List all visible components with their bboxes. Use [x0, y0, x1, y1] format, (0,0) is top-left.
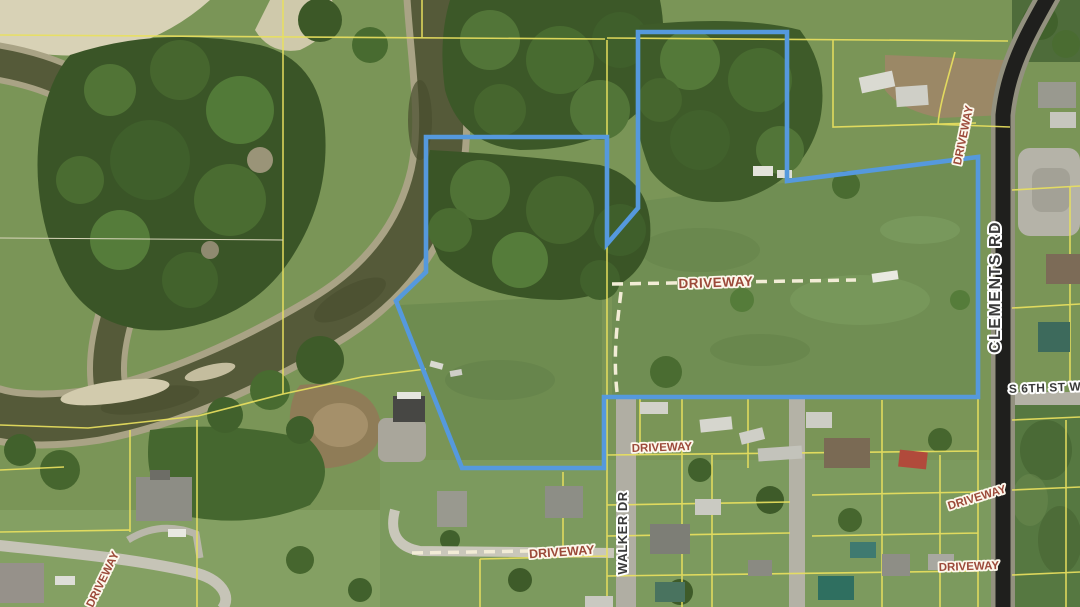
road-label-s-6th-st-w: S 6TH ST W	[1009, 379, 1080, 396]
aerial-map-canvas[interactable]: CLEMENTS RD WALKER DR S 6TH ST W DRIVEWA…	[0, 0, 1080, 607]
aerial-map[interactable]: CLEMENTS RD WALKER DR S 6TH ST W DRIVEWA…	[0, 0, 1080, 607]
road-label-walker-dr: WALKER DR	[615, 491, 630, 574]
driveway-label-walker: DRIVEWAY	[632, 441, 693, 455]
red-roof-house	[898, 450, 928, 470]
road-label-clements-rd: CLEMENTS RD	[987, 221, 1004, 353]
side-street	[789, 399, 805, 607]
driveway-label-center: DRIVEWAY	[678, 274, 753, 292]
driveway-label-right-lower: DRIVEWAY	[939, 560, 1000, 574]
